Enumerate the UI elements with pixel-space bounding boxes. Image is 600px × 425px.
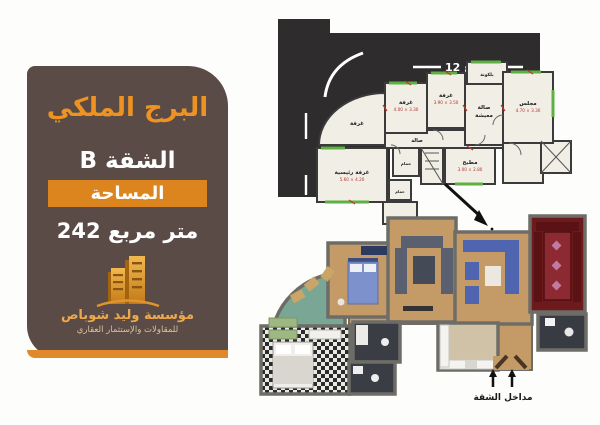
- room-label-balcony: بلكونة: [480, 72, 494, 78]
- room-label-living-2: معيشة: [475, 113, 493, 119]
- buildings-logo-icon: [91, 250, 165, 308]
- company-tagline: للمقاولات والإستثمار العقاري: [27, 324, 228, 336]
- floor-plan-3d: مداخل الشقة: [253, 210, 600, 410]
- entrance-label: مداخل الشقة: [473, 393, 532, 403]
- dim-bedroom2: 3.90 × 3.50: [434, 100, 459, 105]
- dim-majlis: 4.70 × 3.30: [516, 108, 541, 113]
- dim-bedroom1: 4.00 × 3.30: [394, 107, 419, 112]
- room-label-bedroom3: غرفة: [350, 121, 364, 127]
- area-value: 242 متر مربع: [27, 216, 228, 246]
- room-label-master: غرفة رئيسية: [335, 170, 370, 176]
- entrance-marks: [493, 356, 529, 370]
- area-label-badge: المساحة: [48, 180, 207, 207]
- brand-panel: البرج الملكي الشقة B المساحة 242 متر مرب…: [27, 66, 228, 358]
- room-label-kitchen: مطبخ: [463, 160, 478, 166]
- flyer-canvas: البرج الملكي الشقة B المساحة 242 متر مرب…: [0, 0, 600, 425]
- room-label-majlis: مجلس: [519, 101, 536, 107]
- room-label-bath1: حمام: [401, 161, 411, 166]
- dim-kitchen: 3.00 × 2.80: [458, 167, 483, 172]
- apartment-name: الشقة B: [27, 146, 228, 176]
- plan-pointer-arrow-icon: [428, 178, 500, 236]
- panel-accent-strip: [27, 350, 228, 358]
- dim-master: 5.60 × 4.20: [340, 177, 365, 182]
- project-title: البرج الملكي: [27, 92, 228, 124]
- room-label-living-1: صالة: [478, 105, 491, 111]
- room-label-bedroom2: غرفة: [439, 93, 453, 99]
- room-label-bath2: حمام: [395, 189, 405, 194]
- majlis-furniture: [534, 222, 581, 302]
- entrance-arrow-icon: [489, 369, 516, 387]
- room-label-bedroom1: غرفة: [399, 100, 413, 106]
- room-label-hall: صالة: [411, 138, 423, 144]
- company-name: مؤسسة وليد شوباص: [27, 308, 228, 323]
